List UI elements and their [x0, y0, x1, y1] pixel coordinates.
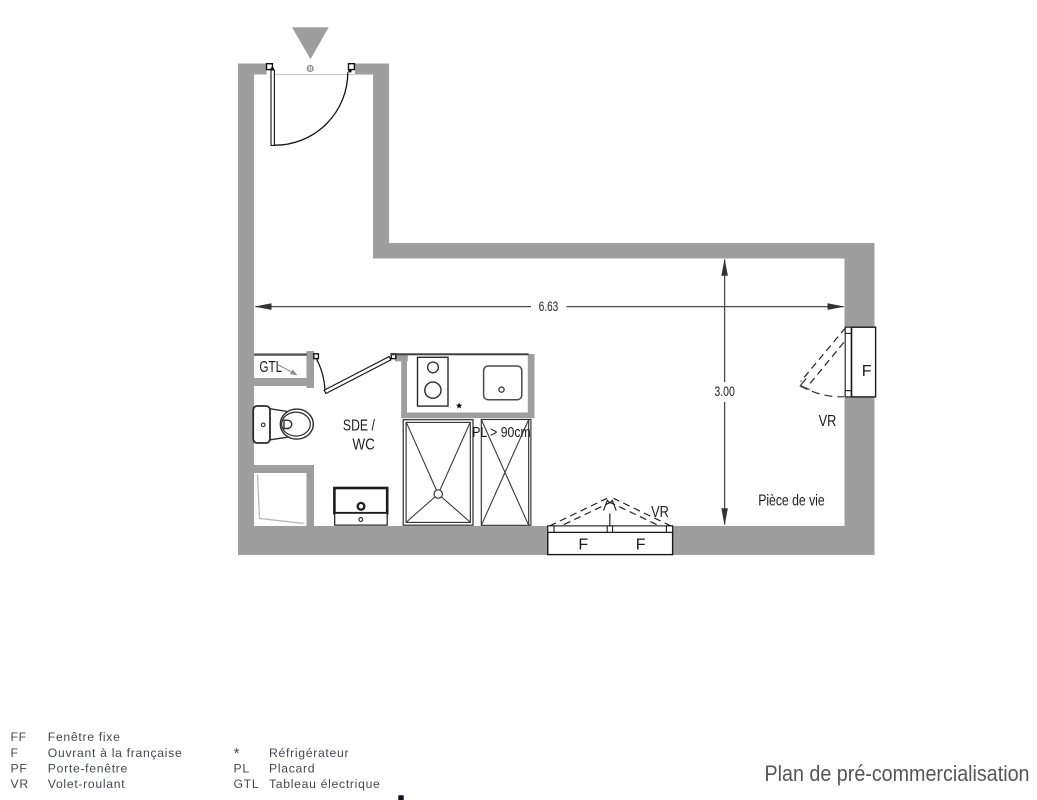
svg-text:*: * — [234, 746, 240, 762]
svg-text:F: F — [578, 537, 588, 554]
svg-text:PL > 90cm: PL > 90cm — [472, 425, 531, 441]
svg-text:Porte-fenêtre: Porte-fenêtre — [48, 762, 128, 776]
svg-text:F: F — [11, 746, 19, 760]
svg-text:FF: FF — [11, 730, 27, 744]
svg-text:3.00: 3.00 — [714, 384, 735, 399]
svg-text:GTL: GTL — [234, 777, 260, 791]
svg-text:Placard: Placard — [269, 762, 315, 776]
svg-text:Volet-roulant: Volet-roulant — [48, 777, 126, 791]
svg-text:Ouvrant à la française: Ouvrant à la française — [48, 746, 183, 760]
svg-text:GTL: GTL — [259, 359, 282, 376]
svg-text:Plan de pré-commercialisation: Plan de pré-commercialisation — [765, 761, 1030, 786]
svg-text:Pièce de vie: Pièce de vie — [758, 492, 825, 509]
svg-text:F: F — [862, 363, 872, 380]
svg-text:WC: WC — [352, 436, 375, 453]
svg-text:VR: VR — [819, 413, 837, 430]
svg-text:6.63: 6.63 — [539, 299, 559, 314]
svg-text:Tableau électrique: Tableau électrique — [269, 777, 381, 791]
svg-text:VR: VR — [11, 777, 29, 791]
svg-text:SDE /: SDE / — [343, 418, 375, 435]
svg-text:Réfrigérateur: Réfrigérateur — [269, 746, 349, 760]
svg-text:PF: PF — [11, 762, 28, 776]
svg-text:VR: VR — [651, 504, 669, 521]
svg-text:PL: PL — [234, 762, 250, 776]
svg-text:F: F — [636, 537, 646, 554]
svg-text:Fenêtre fixe: Fenêtre fixe — [48, 730, 121, 744]
